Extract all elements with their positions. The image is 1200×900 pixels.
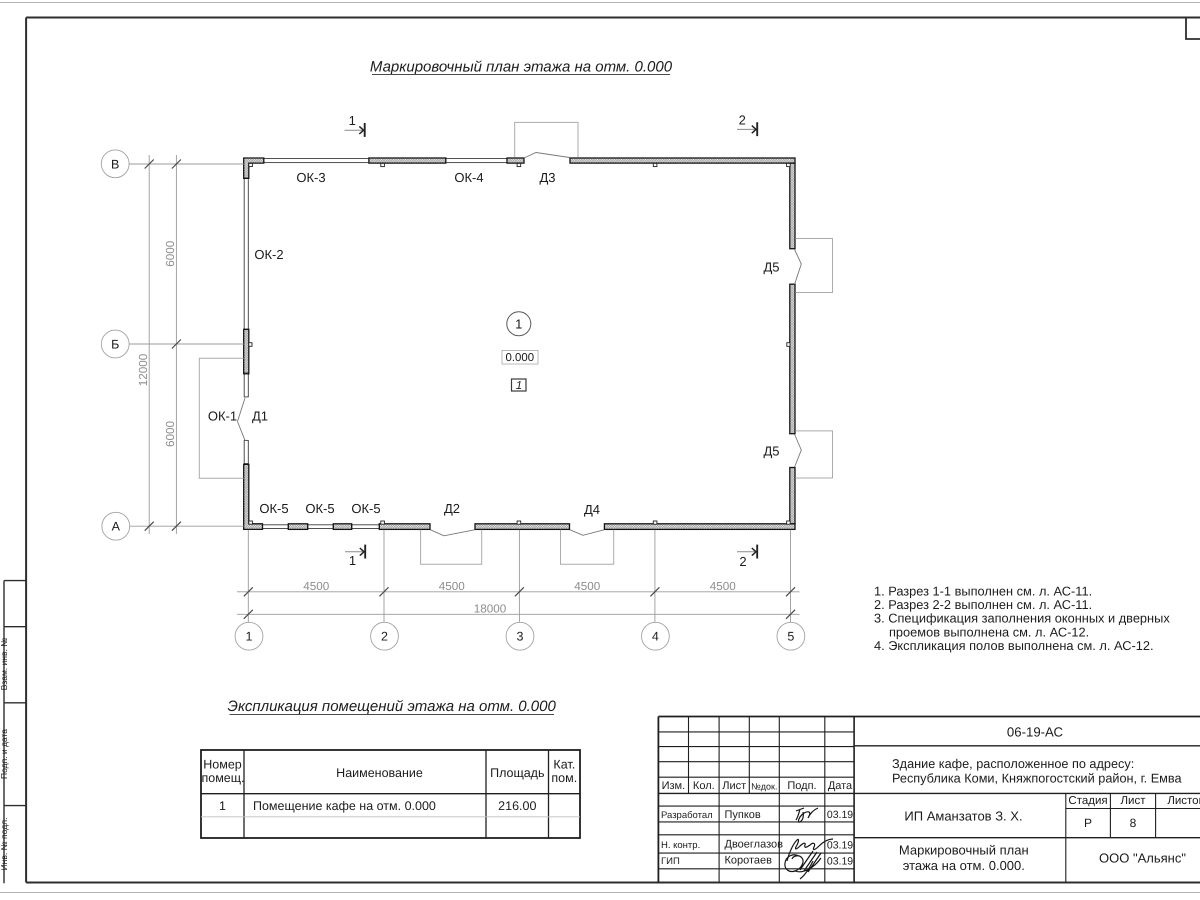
svg-text:Республика Коми, Княжпогостски: Республика Коми, Княжпогостский район, г… [892,772,1182,786]
svg-text:ОК-2: ОК-2 [254,247,283,262]
svg-text:Б: Б [111,338,119,352]
svg-text:2: 2 [739,554,746,569]
svg-text:216.00: 216.00 [498,799,536,813]
svg-text:ОК-5: ОК-5 [259,501,288,516]
svg-text:Кат.: Кат. [553,757,575,771]
svg-text:Изм.: Изм. [662,780,686,792]
svg-text:6000: 6000 [164,240,177,267]
svg-text:Наименование: Наименование [336,766,423,780]
svg-text:4. Экспликация полов выполнена: 4. Экспликация полов выполнена см. л. АС… [874,638,1154,653]
svg-text:Разработал: Разработал [661,810,713,821]
svg-text:Д5: Д5 [763,260,779,275]
svg-text:1: 1 [349,113,356,128]
svg-text:4500: 4500 [303,580,330,593]
svg-text:18000: 18000 [474,602,507,615]
svg-text:Лист: Лист [722,780,746,792]
svg-text:4500: 4500 [574,580,601,593]
svg-text:Номер: Номер [203,757,242,771]
svg-text:06-19-АС: 06-19-АС [1007,724,1064,739]
svg-text:6000: 6000 [164,421,177,448]
svg-text:Р: Р [1084,816,1092,830]
svg-text:Маркировочный план этажа на от: Маркировочный план этажа на отм. 0.000 [370,59,673,76]
svg-text:Пупков: Пупков [725,809,761,821]
svg-text:ОК-5: ОК-5 [351,501,380,516]
svg-text:03.19: 03.19 [827,840,853,852]
svg-text:0.000: 0.000 [506,352,535,364]
svg-text:Коротаев: Коротаев [725,855,773,867]
svg-text:Взам. инв. №: Взам. инв. № [0,638,9,691]
svg-text:Н. контр.: Н. контр. [661,840,700,851]
svg-text:А: А [112,520,121,534]
svg-text:Инв. № подл.: Инв. № подл. [0,818,9,871]
svg-text:помещ.: помещ. [201,771,244,785]
svg-text:2: 2 [739,113,746,128]
svg-text:Дата: Дата [828,780,853,792]
svg-text:1: 1 [246,630,253,644]
svg-text:Д1: Д1 [252,409,268,424]
svg-text:03.19: 03.19 [827,809,853,821]
svg-text:ИП Аманзатов З. Х.: ИП Аманзатов З. Х. [904,808,1022,823]
svg-text:5: 5 [787,630,794,644]
svg-text:4: 4 [652,630,659,644]
svg-text:Подп. и дата: Подп. и дата [0,729,9,779]
svg-text:ГИП: ГИП [661,856,680,867]
svg-text:4500: 4500 [439,580,466,593]
svg-text:пом.: пом. [551,771,577,785]
svg-text:03.19: 03.19 [827,856,853,868]
svg-text:Помещение кафе на отм. 0.000: Помещение кафе на отм. 0.000 [253,799,436,813]
svg-text:3: 3 [517,630,524,644]
svg-text:этажа на отм. 0.000.: этажа на отм. 0.000. [903,858,1025,873]
svg-text:Листов: Листов [1167,795,1200,807]
svg-text:Д3: Д3 [539,170,555,185]
svg-text:Стадия: Стадия [1068,795,1107,807]
svg-text:Д2: Д2 [444,501,460,516]
svg-text:2: 2 [381,630,388,644]
svg-text:Лист: Лист [1121,795,1147,807]
svg-text:1: 1 [219,799,226,813]
svg-text:ОК-5: ОК-5 [305,501,334,516]
svg-text:1: 1 [349,553,356,568]
svg-text:№док.: №док. [751,782,777,792]
svg-text:Кол.: Кол. [693,780,715,792]
svg-text:ОК-1: ОК-1 [208,409,237,424]
svg-text:Маркировочный план: Маркировочный план [899,843,1029,858]
svg-text:В: В [111,157,119,171]
svg-text:Здание кафе, расположенное по: Здание кафе, расположенное по адресу: [892,757,1134,771]
svg-text:1: 1 [515,316,522,331]
svg-text:Подп.: Подп. [787,780,816,792]
svg-text:Двоеглазов: Двоеглазов [725,839,784,851]
svg-text:ООО "Альянс": ООО "Альянс" [1099,851,1186,866]
svg-text:ОК-3: ОК-3 [296,170,325,185]
svg-text:Д5: Д5 [763,444,779,459]
svg-text:8: 8 [1130,816,1137,830]
svg-text:12000: 12000 [137,353,150,386]
svg-text:1: 1 [516,380,522,392]
svg-text:Площадь: Площадь [490,766,544,780]
svg-text:ОК-4: ОК-4 [454,170,483,185]
svg-text:4500: 4500 [710,580,737,593]
svg-text:Д4: Д4 [584,502,600,517]
svg-text:Экспликация помещений этажа на: Экспликация помещений этажа на отм. 0.00… [228,698,557,715]
